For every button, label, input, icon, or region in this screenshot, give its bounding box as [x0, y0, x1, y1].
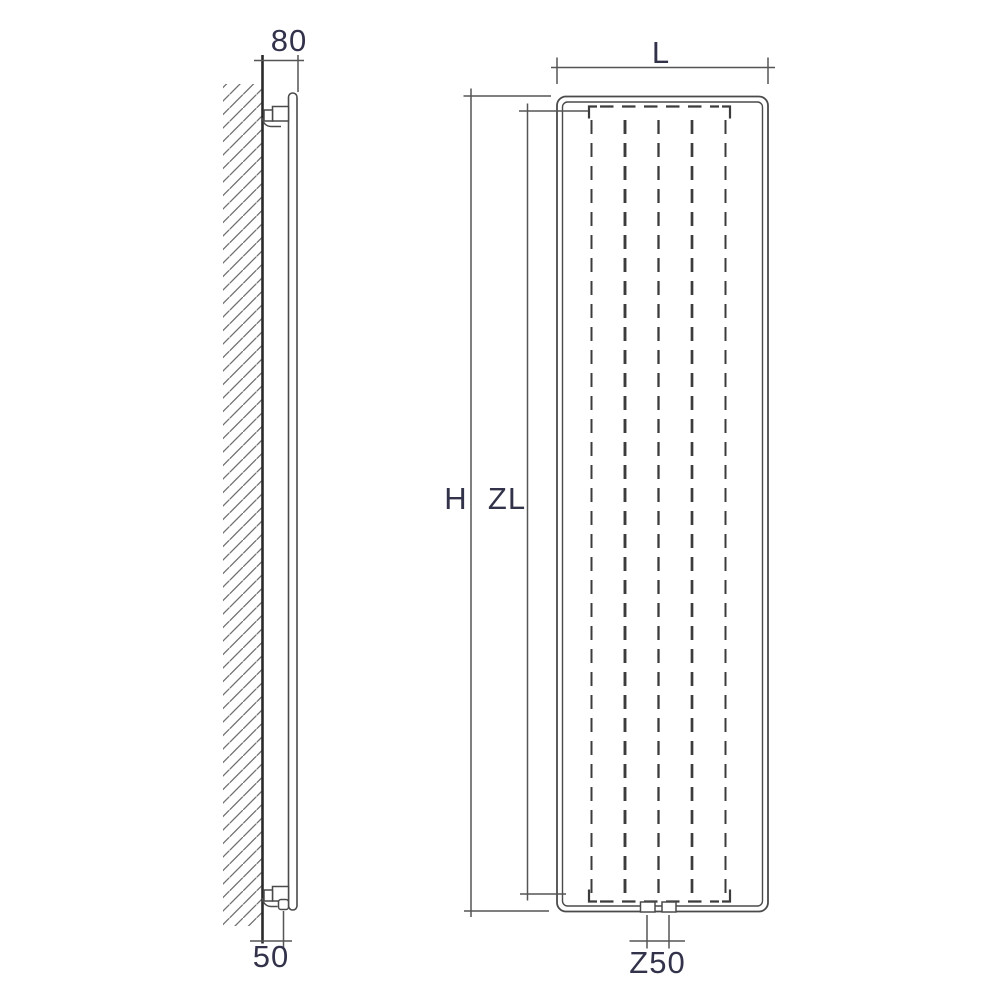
top-bracket-step	[264, 110, 273, 121]
bottom-connection-stub	[279, 900, 289, 910]
dim-L-label: L	[652, 35, 670, 70]
radiator-panel-side	[289, 93, 298, 910]
radiator-technical-drawing: 80 50	[0, 0, 1000, 1000]
side-view: 80 50	[223, 23, 307, 974]
radiator-outer-frame	[557, 97, 768, 912]
dim-80-label: 80	[271, 23, 307, 58]
dim-50-label: 50	[253, 939, 289, 974]
bottom-bracket-step	[264, 890, 273, 901]
dim-ZL-label: ZL	[488, 481, 526, 516]
dim-H-label: H	[444, 481, 467, 516]
connection-valve-left	[641, 902, 656, 912]
front-view: L H ZL Z50	[444, 35, 775, 980]
top-bracket-body	[273, 107, 289, 122]
wall-hatch	[223, 84, 262, 926]
drawing-canvas: 80 50	[0, 0, 1000, 1000]
dim-Z50-label: Z50	[629, 945, 685, 980]
connection-valve-right	[662, 902, 676, 912]
